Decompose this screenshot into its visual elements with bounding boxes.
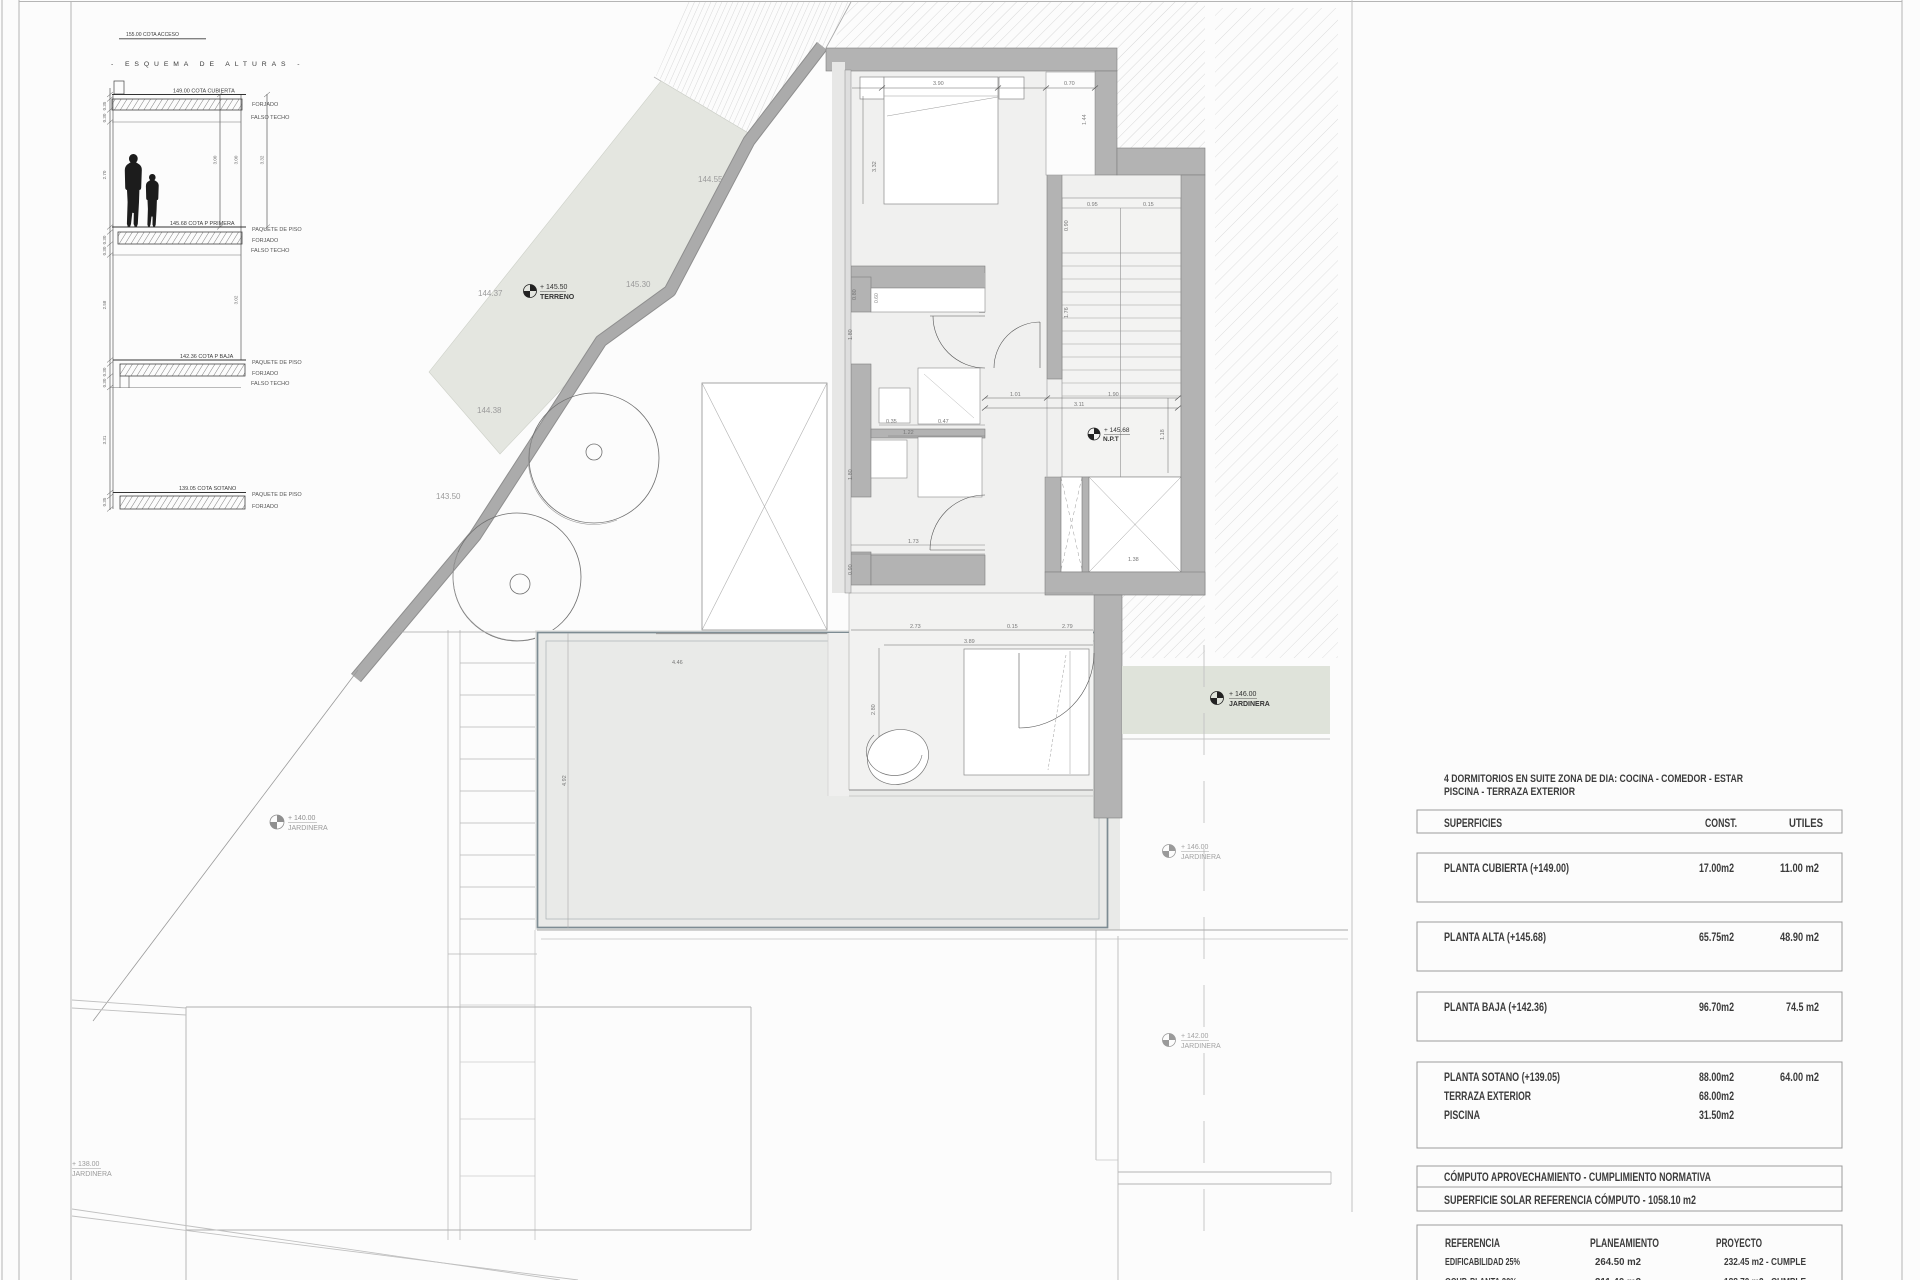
- svg-text:11.00 m2: 11.00 m2: [1780, 861, 1819, 875]
- svg-text:17.00m2: 17.00m2: [1699, 861, 1734, 875]
- svg-text:145.30: 145.30: [626, 280, 651, 289]
- svg-text:1.18: 1.18: [1160, 429, 1166, 440]
- svg-text:FALSO TECHO: FALSO TECHO: [251, 115, 290, 121]
- svg-text:68.00m2: 68.00m2: [1699, 1089, 1734, 1103]
- svg-text:139.05 COTA SOTANO: 139.05 COTA SOTANO: [179, 486, 237, 492]
- svg-text:1.22: 1.22: [903, 430, 914, 436]
- svg-text:0.30: 0.30: [102, 367, 107, 376]
- svg-text:PLANTA CUBIERTA (+149.00): PLANTA CUBIERTA (+149.00): [1444, 861, 1569, 875]
- svg-text:0.60: 0.60: [874, 293, 880, 303]
- svg-text:JARDINERA: JARDINERA: [1181, 1043, 1221, 1050]
- svg-text:144.55: 144.55: [698, 175, 723, 184]
- svg-text:0.35: 0.35: [102, 497, 107, 506]
- svg-text:0.30: 0.30: [102, 113, 107, 122]
- svg-text:1.44: 1.44: [1082, 114, 1088, 125]
- svg-text:PLANTA BAJA (+142.36): PLANTA BAJA (+142.36): [1444, 1000, 1547, 1014]
- svg-text:0.90: 0.90: [848, 564, 854, 575]
- svg-text:149.00 COTA CUBIERTA: 149.00 COTA CUBIERTA: [173, 89, 235, 95]
- svg-text:0.30: 0.30: [102, 246, 107, 255]
- svg-text:+ 140.00: + 140.00: [288, 815, 316, 822]
- svg-text:TERRENO: TERRENO: [540, 294, 575, 301]
- svg-text:142.36 COTA P BAJA: 142.36 COTA P BAJA: [180, 354, 234, 360]
- svg-text:+ 145.50: + 145.50: [540, 284, 568, 291]
- svg-text:+ 146.00: + 146.00: [1229, 691, 1257, 698]
- svg-text:+ 138.00: + 138.00: [72, 1161, 100, 1168]
- svg-text:1.80: 1.80: [848, 329, 854, 340]
- svg-text:FORJADO: FORJADO: [252, 238, 279, 244]
- svg-text:PISCINA - TERRAZA EXTERIOR: PISCINA - TERRAZA EXTERIOR: [1444, 786, 1575, 798]
- svg-text:0.95: 0.95: [1087, 202, 1098, 208]
- svg-text:88.00m2: 88.00m2: [1699, 1070, 1734, 1084]
- svg-text:PAQUETE DE PISO: PAQUETE DE PISO: [252, 492, 302, 498]
- svg-text:0.15: 0.15: [1007, 624, 1018, 630]
- svg-text:48.90 m2: 48.90 m2: [1780, 930, 1819, 944]
- svg-text:SUPERFICIE SOLAR REFERENCIA CÓ: SUPERFICIE SOLAR REFERENCIA CÓMPUTO - 10…: [1444, 1192, 1696, 1207]
- svg-text:2.73: 2.73: [910, 624, 921, 630]
- svg-text:PLANTA ALTA (+145.68): PLANTA ALTA (+145.68): [1444, 930, 1546, 944]
- svg-text:2.70: 2.70: [102, 170, 107, 179]
- svg-text:CÓMPUTO APROVECHAMIENTO - CUMP: CÓMPUTO APROVECHAMIENTO - CUMPLIMIENTO N…: [1444, 1169, 1711, 1184]
- svg-text:FALSO TECHO: FALSO TECHO: [251, 248, 290, 254]
- svg-text:JARDINERA: JARDINERA: [1229, 701, 1270, 708]
- svg-text:4.46: 4.46: [672, 660, 683, 666]
- svg-text:JARDINERA: JARDINERA: [288, 825, 328, 832]
- svg-text:PISCINA: PISCINA: [1444, 1108, 1480, 1122]
- svg-text:3.11: 3.11: [1074, 402, 1084, 408]
- svg-text:- ESQUEMA DE ALTURAS -: - ESQUEMA DE ALTURAS -: [111, 61, 304, 68]
- svg-text:4 DORMITORIOS EN SUITE ZONA DE: 4 DORMITORIOS EN SUITE ZONA DE DIA: COCI…: [1444, 773, 1743, 785]
- svg-text:1.38: 1.38: [1128, 557, 1139, 563]
- svg-text:143.50: 143.50: [436, 492, 461, 501]
- svg-text:2.58: 2.58: [102, 300, 107, 309]
- svg-text:3.32: 3.32: [872, 161, 878, 172]
- svg-text:1.73: 1.73: [908, 539, 919, 545]
- svg-text:+ 145.68: + 145.68: [1104, 427, 1130, 434]
- svg-text:65.75m2: 65.75m2: [1699, 930, 1734, 944]
- svg-text:0.35: 0.35: [886, 419, 897, 425]
- svg-text:4.92: 4.92: [562, 775, 568, 786]
- svg-text:0.90: 0.90: [1064, 220, 1070, 231]
- svg-text:3.89: 3.89: [964, 639, 975, 645]
- svg-text:1.01: 1.01: [1010, 392, 1021, 398]
- svg-text:3.02: 3.02: [234, 295, 239, 304]
- svg-text:0.30: 0.30: [102, 235, 107, 244]
- svg-text:155.00 COTA ACCESO: 155.00 COTA ACCESO: [126, 32, 179, 38]
- svg-text:+ 142.00: + 142.00: [1181, 1033, 1209, 1040]
- svg-text:0.80: 0.80: [852, 289, 858, 300]
- svg-text:UTILES: UTILES: [1789, 816, 1823, 830]
- svg-text:PROYECTO: PROYECTO: [1716, 1236, 1762, 1250]
- svg-text:0.30: 0.30: [102, 378, 107, 387]
- svg-text:3.00: 3.00: [234, 155, 239, 164]
- svg-text:1.76: 1.76: [1064, 307, 1070, 318]
- svg-text:0.35: 0.35: [102, 101, 107, 110]
- svg-text:FORJADO: FORJADO: [252, 504, 279, 510]
- svg-text:64.00 m2: 64.00 m2: [1780, 1070, 1819, 1084]
- svg-text:JARDINERA: JARDINERA: [1181, 854, 1221, 861]
- svg-text:0.47: 0.47: [938, 419, 949, 425]
- svg-text:3.00: 3.00: [213, 155, 218, 164]
- svg-text:PLANEAMIENTO: PLANEAMIENTO: [1590, 1236, 1659, 1250]
- svg-text:232.45 m2 - CUMPLE: 232.45 m2 - CUMPLE: [1724, 1257, 1806, 1268]
- svg-text:PLANTA SOTANO (+139.05): PLANTA SOTANO (+139.05): [1444, 1070, 1560, 1084]
- svg-text:96.70m2: 96.70m2: [1699, 1000, 1734, 1014]
- svg-text:PAQUETE DE PISO: PAQUETE DE PISO: [252, 360, 302, 366]
- svg-text:2.79: 2.79: [1062, 624, 1073, 630]
- svg-text:1.90: 1.90: [1108, 392, 1119, 398]
- svg-text:CONST.: CONST.: [1705, 816, 1737, 830]
- svg-text:JARDINERA: JARDINERA: [72, 1171, 112, 1178]
- svg-text:0.15: 0.15: [1143, 202, 1154, 208]
- svg-text:FORJADO: FORJADO: [252, 102, 279, 108]
- svg-text:3.90: 3.90: [933, 81, 944, 87]
- svg-text:+ 146.00: + 146.00: [1181, 844, 1209, 851]
- svg-text:144.37: 144.37: [478, 289, 503, 298]
- svg-text:144.38: 144.38: [477, 406, 502, 415]
- svg-text:264.50 m2: 264.50 m2: [1595, 1257, 1641, 1268]
- svg-text:2.80: 2.80: [871, 704, 877, 715]
- svg-text:0.70: 0.70: [1064, 81, 1075, 87]
- svg-text:SUPERFICIES: SUPERFICIES: [1444, 816, 1502, 830]
- svg-text:FORJADO: FORJADO: [252, 371, 279, 377]
- svg-text:3.31: 3.31: [102, 435, 107, 444]
- svg-text:PAQUETE DE PISO: PAQUETE DE PISO: [252, 227, 302, 233]
- svg-text:N.P.T: N.P.T: [1103, 436, 1119, 443]
- svg-text:1.80: 1.80: [848, 469, 854, 480]
- svg-text:EDIFICABILIDAD 25%: EDIFICABILIDAD 25%: [1445, 1257, 1520, 1268]
- svg-text:TERRAZA EXTERIOR: TERRAZA EXTERIOR: [1444, 1089, 1531, 1103]
- svg-text:3.32: 3.32: [260, 155, 265, 164]
- svg-text:FALSO TECHO: FALSO TECHO: [251, 381, 290, 387]
- svg-text:31.50m2: 31.50m2: [1699, 1108, 1734, 1122]
- svg-text:145.68 COTA P PRIMERA: 145.68 COTA P PRIMERA: [170, 221, 235, 227]
- svg-text:74.5 m2: 74.5 m2: [1786, 1000, 1819, 1014]
- svg-text:REFERENCIA: REFERENCIA: [1445, 1236, 1500, 1250]
